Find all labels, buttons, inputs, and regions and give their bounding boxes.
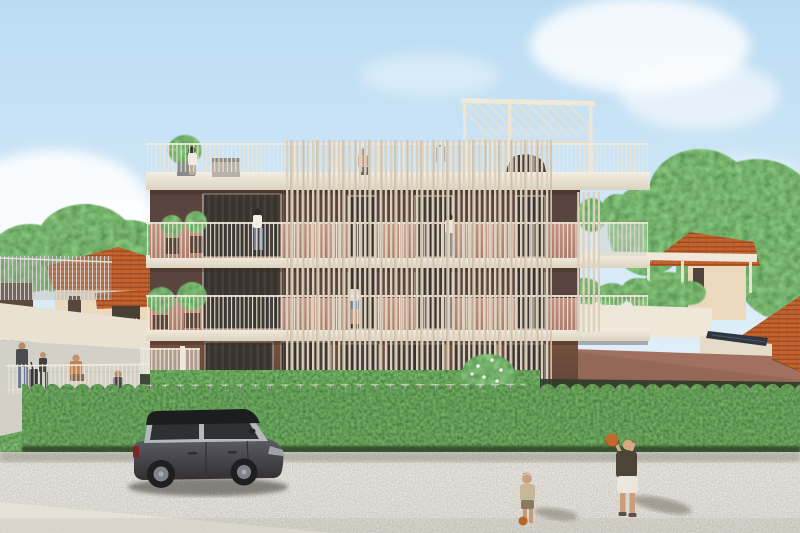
car-side-mirror [249,429,256,434]
road [0,452,800,533]
boy-shoe [629,513,637,517]
scene-canvas [0,0,800,533]
scene-stage [0,0,800,533]
car-door-handle [228,451,237,454]
toddler-ball [519,517,528,526]
boy-shirt [616,451,637,478]
boy-leg [630,493,636,513]
boy-leg [620,493,626,513]
toddler-leg [529,509,533,523]
apartment-building [140,98,654,402]
boy-shoe [619,512,627,516]
boy-shorts [617,476,638,493]
car-taillight [133,446,139,458]
toddler-shorts [521,500,534,509]
glass-balustrade [600,224,646,256]
slat-screen-side-panel [577,192,600,332]
car-door-handle [188,452,197,455]
toddler-shirt [520,484,535,501]
hedge-shadow-on-road [0,452,800,462]
hedge-top-texture [22,378,800,394]
road-bottom-shading [0,518,800,533]
car-roof [146,409,260,425]
toddler-head [522,474,532,484]
